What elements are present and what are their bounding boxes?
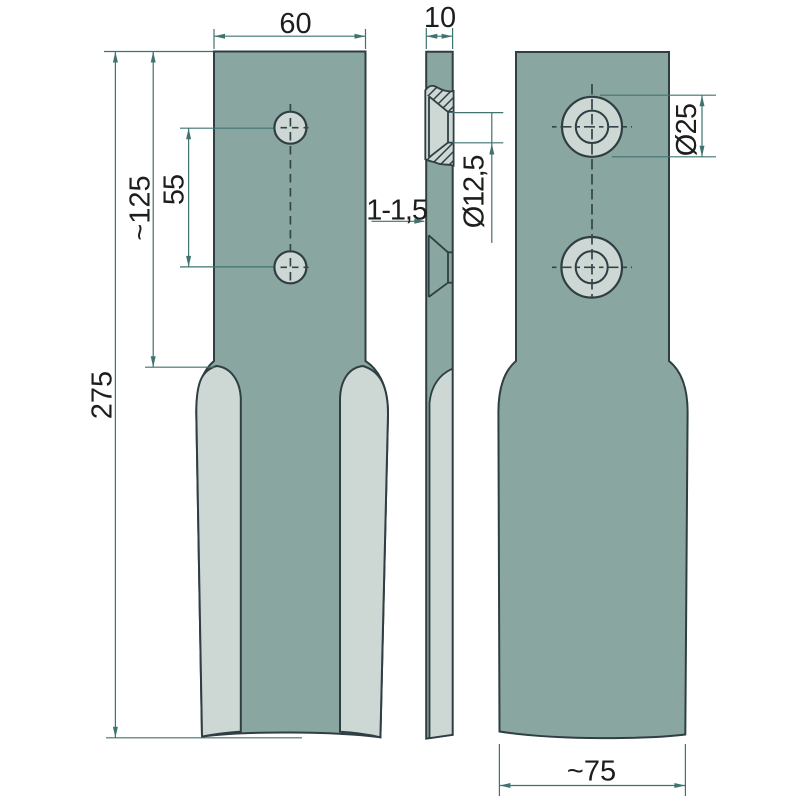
- svg-text:~125: ~125: [125, 175, 157, 240]
- svg-text:1-1,5: 1-1,5: [366, 195, 427, 227]
- svg-text:10: 10: [424, 2, 456, 34]
- svg-text:55: 55: [159, 175, 191, 205]
- svg-text:~75: ~75: [567, 756, 616, 788]
- svg-text:Ø25: Ø25: [671, 104, 703, 156]
- svg-text:Ø12,5: Ø12,5: [459, 156, 491, 229]
- svg-text:275: 275: [87, 371, 119, 419]
- svg-text:60: 60: [279, 8, 311, 40]
